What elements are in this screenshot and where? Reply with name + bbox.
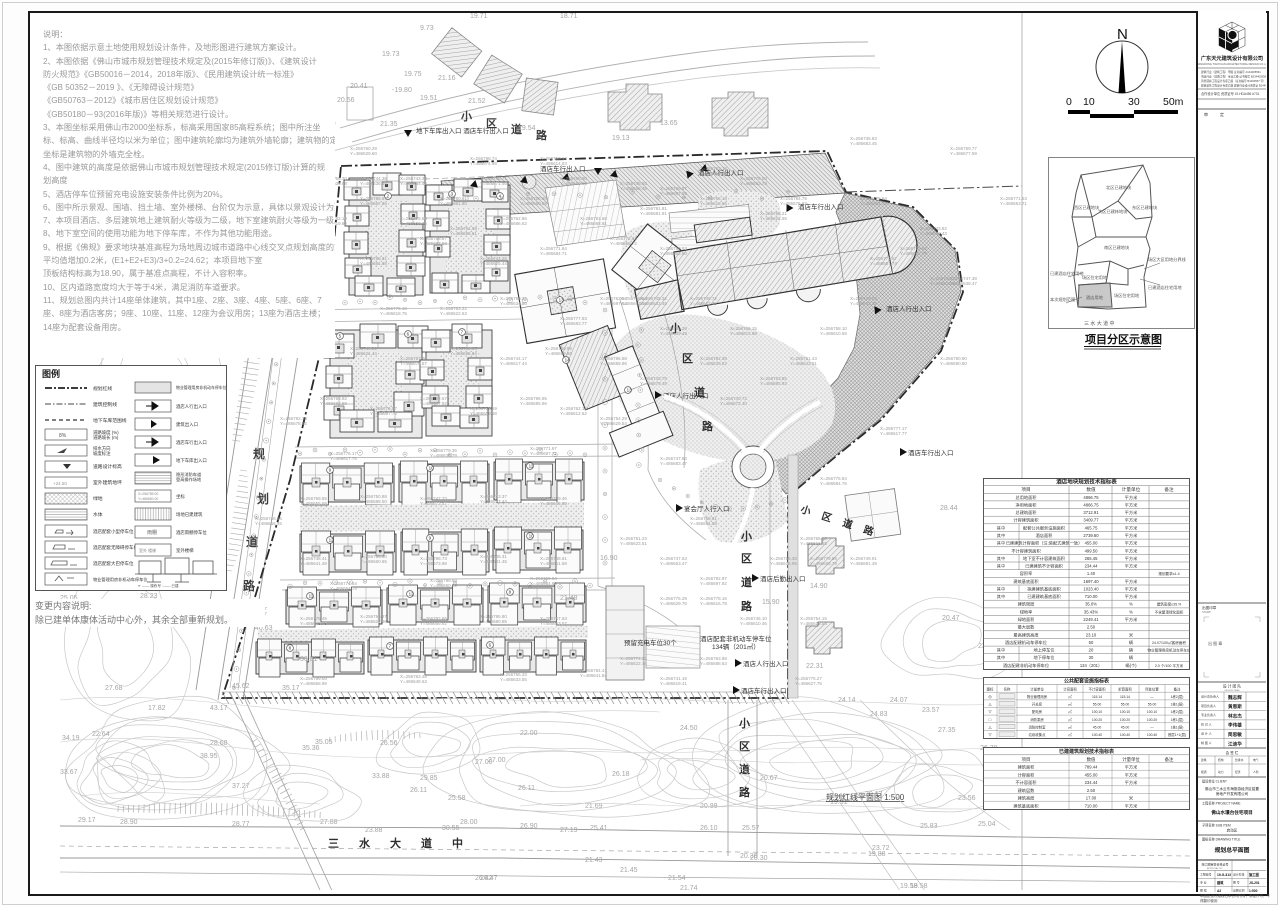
svg-text:33.88: 33.88 xyxy=(372,773,390,780)
svg-text:其中: 其中 xyxy=(997,540,1005,547)
svg-text:Y=486656.46: Y=486656.46 xyxy=(255,521,282,526)
svg-text:13: 13 xyxy=(627,388,633,393)
svg-text:Y=486634.43: Y=486634.43 xyxy=(400,181,427,186)
svg-text:合作设计单位 资质证号 19-HDA456 #731: 合作设计单位 资质证号 19-HDA456 #731 xyxy=(1201,91,1260,96)
svg-text:12: 12 xyxy=(409,592,415,597)
svg-text:Y=486683.47: Y=486683.47 xyxy=(660,461,687,466)
svg-text:%: % xyxy=(1129,602,1133,607)
svg-text:1栋2(层): 1栋2(层) xyxy=(1171,694,1184,699)
svg-text:Y=486673.47: Y=486673.47 xyxy=(420,501,447,506)
svg-text:10: 10 xyxy=(1083,96,1095,108)
svg-text:789.44: 789.44 xyxy=(1085,765,1098,770)
svg-text:道路设计标高: 道路设计标高 xyxy=(93,463,122,470)
svg-text:Y=486650.76: Y=486650.76 xyxy=(400,221,427,226)
svg-text:其中: 其中 xyxy=(997,532,1005,539)
svg-text:1.40: 1.40 xyxy=(1087,571,1096,576)
svg-text:26.11: 26.11 xyxy=(518,785,535,792)
svg-text:辆: 辆 xyxy=(1129,639,1133,646)
svg-text:数值: 数值 xyxy=(1087,756,1096,763)
svg-text:+24.50: +24.50 xyxy=(53,481,67,486)
svg-text:24.50: 24.50 xyxy=(680,725,698,732)
svg-text:其中: 其中 xyxy=(997,555,1005,562)
svg-text:8%: 8% xyxy=(59,433,67,439)
svg-text:Y=486629.60: Y=486629.60 xyxy=(350,151,377,156)
svg-text:Y=486664.75: Y=486664.75 xyxy=(860,201,887,206)
svg-text:南区已建地块: 南区已建地块 xyxy=(1104,244,1130,251)
svg-text:Y=486614.53: Y=486614.53 xyxy=(540,161,567,166)
svg-text:开关房: 开关房 xyxy=(1032,702,1043,707)
svg-text:Y=486663.49: Y=486663.49 xyxy=(850,301,877,306)
svg-text:规划红线: 规划红线 xyxy=(93,385,112,392)
svg-text:100.40: 100.40 xyxy=(1120,733,1130,737)
svg-text:校 对 人: 校 对 人 xyxy=(1201,721,1212,726)
svg-text:其中: 其中 xyxy=(997,593,1005,600)
svg-text:设 计 人: 设 计 人 xyxy=(1201,731,1212,736)
svg-text:Y=486681.59: Y=486681.59 xyxy=(690,521,717,526)
svg-text:21.74: 21.74 xyxy=(680,885,698,892)
svg-text:Y=486632.45: Y=486632.45 xyxy=(640,301,667,306)
svg-text:李伟雄: 李伟雄 xyxy=(1227,722,1242,729)
svg-text:道: 道 xyxy=(741,575,752,589)
svg-text:1697.40: 1697.40 xyxy=(1083,579,1099,584)
svg-text:建筑密度≤35.%: 建筑密度≤35.% xyxy=(1157,602,1182,607)
svg-text:50m: 50m xyxy=(1163,96,1184,108)
svg-text:大区已建林地块: 大区已建林地块 xyxy=(1098,208,1128,215)
svg-text:19-G-313: 19-G-313 xyxy=(1217,873,1231,877)
svg-text:14: 14 xyxy=(565,358,571,363)
svg-text:Y=486674.98: Y=486674.98 xyxy=(470,161,497,166)
svg-text:区: 区 xyxy=(739,740,750,753)
svg-text:区: 区 xyxy=(682,352,693,365)
svg-text:北区已建地块: 北区已建地块 xyxy=(1106,184,1132,191)
svg-text:26.56: 26.56 xyxy=(380,740,398,747)
svg-text:江迪华: 江迪华 xyxy=(1228,740,1242,747)
svg-text:道: 道 xyxy=(739,762,750,776)
svg-text:28.44: 28.44 xyxy=(940,505,958,512)
svg-text:21.16: 21.16 xyxy=(438,75,456,82)
svg-text:专 业: 专 业 xyxy=(1200,880,1207,885)
svg-text:路: 路 xyxy=(741,599,753,613)
svg-text:设计阶段: 设计阶段 xyxy=(1233,872,1245,877)
svg-text:建筑基底面积: 建筑基底面积 xyxy=(1013,802,1038,809)
svg-text:3409.77: 3409.77 xyxy=(1083,518,1099,523)
svg-text:建筑: 建筑 xyxy=(1201,758,1207,762)
svg-text:辆: 辆 xyxy=(1129,654,1133,661)
svg-text:36.81: 36.81 xyxy=(300,656,318,663)
svg-text:Y=486673.98: Y=486673.98 xyxy=(420,561,447,566)
svg-text:佛山水璟台住宅项目: 佛山水璟台住宅项目 xyxy=(1210,809,1252,816)
svg-text:100.20: 100.20 xyxy=(1147,718,1157,722)
svg-text:Y=486697.69: Y=486697.69 xyxy=(660,191,687,196)
svg-text:30: 30 xyxy=(1128,96,1140,108)
svg-text:Y=486625.44: Y=486625.44 xyxy=(480,261,507,266)
svg-text:道: 道 xyxy=(421,836,432,850)
svg-text:29.85: 29.85 xyxy=(420,775,438,782)
svg-text:Y=486634.80: Y=486634.80 xyxy=(500,301,527,306)
svg-text:室外 楼梯: 室外 楼梯 xyxy=(139,547,156,553)
svg-text:市政行业（道路工程）专业乙级 证书编号 B234400556: 市政行业（道路工程）专业乙级 证书编号 B2344005561 xyxy=(1201,75,1266,79)
svg-text:酒店人行出入口: 酒店人行出入口 xyxy=(176,403,207,410)
svg-text:35.05: 35.05 xyxy=(315,739,333,746)
svg-text:不含屋顶绿化面积: 不含屋顶绿化面积 xyxy=(1155,609,1184,614)
svg-text:绿地面积: 绿地面积 xyxy=(1018,616,1035,623)
svg-text:Y=486621.55: Y=486621.55 xyxy=(760,216,787,221)
svg-text:Y=486688.63: Y=486688.63 xyxy=(700,661,727,666)
svg-text:图纸名称 DRAWING TITLE: 图纸名称 DRAWING TITLE xyxy=(1202,837,1240,842)
svg-text:场地已建建筑: 场地已建建筑 xyxy=(176,511,203,518)
svg-text:林志杰: 林志杰 xyxy=(1228,712,1242,719)
svg-text:21.54: 21.54 xyxy=(668,875,686,882)
svg-text:Y=486678.92: Y=486678.92 xyxy=(280,421,307,426)
svg-text:地下车库范围线: 地下车库范围线 xyxy=(93,417,127,424)
svg-text:4866.75: 4866.75 xyxy=(1083,495,1099,500)
svg-text:3712.91: 3712.91 xyxy=(1083,510,1099,515)
svg-text:27.19: 27.19 xyxy=(560,827,578,834)
svg-text:35.36: 35.36 xyxy=(302,745,320,752)
svg-text:14.90: 14.90 xyxy=(810,583,828,590)
svg-text:已建酒店住宅用地: 已建酒店住宅用地 xyxy=(1050,270,1084,277)
svg-text:酒店配套大巴停车位: 酒店配套大巴停车位 xyxy=(93,560,134,567)
svg-text:魏志辉: 魏志辉 xyxy=(1227,694,1242,701)
svg-text:27.35: 27.35 xyxy=(938,727,956,734)
svg-text:计量单位: 计量单位 xyxy=(1122,486,1141,493)
svg-text:455.00: 455.00 xyxy=(1085,772,1098,777)
svg-text:Y=486657.74: Y=486657.74 xyxy=(870,261,897,266)
svg-text:计量单位: 计量单位 xyxy=(1030,686,1044,691)
svg-text:Y=486683.45: Y=486683.45 xyxy=(850,141,877,146)
svg-text:Y=486622.63: Y=486622.63 xyxy=(440,311,467,316)
svg-text:不计容面积: 不计容面积 xyxy=(1016,779,1037,786)
svg-text:26.90: 26.90 xyxy=(520,823,538,830)
svg-text:Y=486646.89: Y=486646.89 xyxy=(540,501,567,506)
svg-text:24.07/100㎡客房面积: 24.07/100㎡客房面积 xyxy=(1152,640,1186,645)
svg-text:预留充电车位30个: 预留充电车位30个 xyxy=(624,638,677,647)
svg-text:Y=486684.71: Y=486684.71 xyxy=(540,251,567,256)
svg-text:已建酒店住宅用地: 已建酒店住宅用地 xyxy=(1148,284,1182,291)
svg-text:26.18: 26.18 xyxy=(612,771,630,778)
svg-text:已建建筑规划技术指标表: 已建建筑规划技术指标表 xyxy=(1059,748,1115,755)
svg-text:Y=486653.47: Y=486653.47 xyxy=(660,561,687,566)
svg-text:45.00: 45.00 xyxy=(1121,726,1130,730)
svg-text:115.14: 115.14 xyxy=(1092,695,1102,699)
svg-text:总用地面积: 总用地面积 xyxy=(1016,494,1037,501)
svg-text:10: 10 xyxy=(529,534,535,539)
svg-text:22.64: 22.64 xyxy=(92,731,110,738)
svg-text:19.58: 19.58 xyxy=(910,883,928,890)
svg-text:绿地: 绿地 xyxy=(93,495,103,502)
svg-text:Y=486661.80: Y=486661.80 xyxy=(440,201,467,206)
svg-text:不计容建筑面积: 不计容建筑面积 xyxy=(1011,547,1040,554)
svg-text:16.90: 16.90 xyxy=(600,555,618,562)
svg-text:三: 三 xyxy=(328,837,339,850)
svg-text:不计容面积: 不计容面积 xyxy=(1089,686,1107,691)
svg-text:图标: 图标 xyxy=(987,686,994,691)
svg-text:图 幅: 图 幅 xyxy=(1200,888,1207,893)
svg-text:35.43%: 35.43% xyxy=(1084,609,1098,614)
svg-text:Y=486693.79: Y=486693.79 xyxy=(740,181,767,186)
svg-text:Y=486637.43: Y=486637.43 xyxy=(480,499,507,504)
svg-text:Y=486618.66: Y=486618.66 xyxy=(700,201,727,206)
svg-text:酒店雨棚停车位: 酒店雨棚停车位 xyxy=(176,529,207,536)
svg-text:平方米: 平方米 xyxy=(1125,771,1138,778)
svg-text:公共配套设施指标表: 公共配套设施指标表 xyxy=(1064,678,1110,685)
svg-text:25.04: 25.04 xyxy=(978,821,996,828)
svg-text:Y=486660.65: Y=486660.65 xyxy=(520,201,547,206)
svg-text:其中: 其中 xyxy=(997,524,1005,531)
svg-text:黄恩斯: 黄恩斯 xyxy=(1228,703,1242,710)
svg-text:Y=486658.96: Y=486658.96 xyxy=(600,361,627,366)
svg-text:N: N xyxy=(1117,26,1128,43)
svg-text:12: 12 xyxy=(329,538,335,543)
svg-text:平方米: 平方米 xyxy=(1125,540,1138,547)
svg-text:广东天元建筑设计有限公司: 广东天元建筑设计有限公司 xyxy=(1201,54,1263,62)
svg-text:佛山市三水云东海旅游经济区铭置: 佛山市三水云东海旅游经济区铭置 xyxy=(1205,786,1259,791)
svg-text:酒店后勤出入口: 酒店后勤出入口 xyxy=(760,574,806,583)
svg-text:水体: 水体 xyxy=(93,511,103,518)
svg-text:场区住宅用地: 场区住宅用地 xyxy=(1114,292,1140,299)
svg-text:建设单位 CLIENT: 建设单位 CLIENT xyxy=(1202,779,1227,784)
svg-text:28.90: 28.90 xyxy=(120,819,138,826)
svg-text:100.10: 100.10 xyxy=(1092,710,1102,714)
svg-text:Y=486697.76: Y=486697.76 xyxy=(370,411,397,416)
svg-text:酒店配建机动车停车位: 酒店配建机动车停车位 xyxy=(1005,639,1047,646)
svg-text:场区住宅用地: 场区住宅用地 xyxy=(1082,274,1108,281)
svg-text:酒店人行出入口: 酒店人行出入口 xyxy=(886,304,932,313)
svg-text:21.69: 21.69 xyxy=(585,803,603,810)
svg-text:Y=486659.58: Y=486659.58 xyxy=(470,411,497,416)
svg-text:10: 10 xyxy=(429,466,435,471)
svg-text:18.71: 18.71 xyxy=(560,13,578,20)
svg-text:24.07: 24.07 xyxy=(890,697,908,704)
svg-text:Y=486684.76: Y=486684.76 xyxy=(820,481,847,486)
svg-text:Y=486641.84: Y=486641.84 xyxy=(580,673,607,678)
svg-text:酒店面积: 酒店面积 xyxy=(1036,532,1053,539)
svg-text:1栋1(层): 1栋1(层) xyxy=(1171,725,1184,730)
svg-text:Y=486663.57: Y=486663.57 xyxy=(540,621,567,626)
svg-text:100.40: 100.40 xyxy=(1092,733,1102,737)
svg-text:Y=486664.74: Y=486664.74 xyxy=(330,586,357,591)
svg-text:100.20: 100.20 xyxy=(1092,718,1102,722)
svg-text:35.0%: 35.0% xyxy=(1085,602,1097,607)
svg-text:23.72: 23.72 xyxy=(872,845,890,852)
svg-text:室外建筑地坪: 室外建筑地坪 xyxy=(93,479,122,486)
svg-text:Y=486660.65: Y=486660.65 xyxy=(360,559,387,564)
svg-text:Y=486636.79: Y=486636.79 xyxy=(430,453,457,458)
svg-text:首层1+1(层): 首层1+1(层) xyxy=(1168,732,1186,737)
svg-text:Y=486681.88: Y=486681.88 xyxy=(360,261,387,266)
svg-text:Y=486645.75: Y=486645.75 xyxy=(300,621,327,626)
svg-text:垃圾收集点: 垃圾收集点 xyxy=(1029,732,1047,737)
svg-text:710.00: 710.00 xyxy=(1085,594,1098,599)
svg-text:Y=486697.92: Y=486697.92 xyxy=(700,581,727,586)
svg-text:11: 11 xyxy=(529,464,534,469)
svg-text:11: 11 xyxy=(309,594,314,599)
svg-text:净用地面积: 净用地面积 xyxy=(1016,501,1037,508)
svg-text:27.88: 27.88 xyxy=(320,819,338,826)
svg-text:平方米: 平方米 xyxy=(1125,802,1138,809)
svg-text:平方米: 平方米 xyxy=(1125,524,1138,531)
svg-text:38.95: 38.95 xyxy=(200,753,218,760)
svg-text:20.30: 20.30 xyxy=(750,855,768,862)
svg-text:平方米: 平方米 xyxy=(1125,532,1138,539)
svg-text:地上停车位: 地上停车位 xyxy=(1034,647,1055,654)
svg-text:Y=486619.41: Y=486619.41 xyxy=(660,681,687,686)
svg-text:消防控制室: 消防控制室 xyxy=(1029,725,1047,730)
svg-text:Y=486661.68: Y=486661.68 xyxy=(540,561,567,566)
svg-text:建筑出入口: 建筑出入口 xyxy=(176,421,198,428)
svg-text:启动区: 启动区 xyxy=(1227,828,1238,833)
svg-text:Y=486616.65: Y=486616.65 xyxy=(800,541,827,546)
svg-text:15.90: 15.90 xyxy=(762,599,780,606)
svg-text:DESIGN TEAM: DESIGN TEAM xyxy=(1224,689,1239,692)
svg-text:物业管理用房机动车停车位: 物业管理用房机动车停车位 xyxy=(1147,648,1190,653)
svg-text:酒店配套无障碍停车位: 酒店配套无障碍停车位 xyxy=(93,544,138,551)
svg-text:Y=486672.40: Y=486672.40 xyxy=(720,401,747,406)
svg-text:Y=486671.46: Y=486671.46 xyxy=(480,181,507,186)
svg-text:Y=486621.44: Y=486621.44 xyxy=(350,351,377,356)
svg-text:%: % xyxy=(1129,609,1133,614)
svg-text:辆: 辆 xyxy=(1129,647,1133,654)
svg-text:其中: 其中 xyxy=(997,647,1005,654)
svg-text:19.13: 19.13 xyxy=(612,135,630,142)
svg-text:备注: 备注 xyxy=(1174,686,1181,691)
svg-text:25.41: 25.41 xyxy=(590,825,608,832)
svg-text:项目分区示意图: 项目分区示意图 xyxy=(1085,332,1162,346)
svg-text:Y=486675.84: Y=486675.84 xyxy=(780,201,807,206)
svg-text:2739.60: 2739.60 xyxy=(1083,533,1099,538)
svg-text:Y=486699.86: Y=486699.86 xyxy=(545,351,572,356)
svg-text:50: 50 xyxy=(1089,640,1094,645)
svg-text:平方米: 平方米 xyxy=(1125,764,1138,771)
svg-text:建筑装饰工程设计专项乙级 建筑行业设计资质证 B244005: 建筑装饰工程设计专项乙级 建筑行业设计资质证 B2440055 xyxy=(1201,84,1266,88)
svg-text:21.52: 21.52 xyxy=(468,98,486,105)
svg-text:X=256789.00: X=256789.00 xyxy=(138,492,158,496)
svg-text:经济: 经济 xyxy=(1235,770,1241,774)
svg-text:Y=486688.50: Y=486688.50 xyxy=(360,499,387,504)
svg-text:Y=486623.51: Y=486623.51 xyxy=(620,541,647,546)
svg-text:设 计 团 队: 设 计 团 队 xyxy=(1223,684,1242,689)
svg-text:STAMP: STAMP xyxy=(1202,610,1211,614)
svg-text:Y=486680.95: Y=486680.95 xyxy=(480,619,507,624)
svg-text:场区大区用地分界线: 场区大区用地分界线 xyxy=(1148,256,1187,263)
svg-text:26.11: 26.11 xyxy=(410,787,427,794)
svg-text:Y=486653.50: Y=486653.50 xyxy=(660,251,687,256)
svg-text:2.50: 2.50 xyxy=(1087,788,1096,793)
svg-text:出 图 章: 出 图 章 xyxy=(1208,640,1222,646)
svg-text:酒店地块规划技术指标表: 酒店地块规划技术指标表 xyxy=(1056,478,1117,486)
svg-text:物业管理用房: 物业管理用房 xyxy=(1027,694,1048,699)
svg-text:Y=486626.60: Y=486626.60 xyxy=(930,281,957,286)
svg-text:21.35: 21.35 xyxy=(380,121,398,128)
svg-text:Y=486616.78: Y=486616.78 xyxy=(700,601,727,606)
svg-text:45.00: 45.00 xyxy=(1093,726,1102,730)
svg-text:1:500: 1:500 xyxy=(1249,889,1258,892)
svg-text:Y=486643.51: Y=486643.51 xyxy=(790,361,817,366)
svg-text:建筑密度: 建筑密度 xyxy=(1018,601,1036,608)
svg-text:25.58: 25.58 xyxy=(448,795,466,802)
svg-text:Y=486627.75: Y=486627.75 xyxy=(795,681,822,686)
svg-text:Y=486653.71: Y=486653.71 xyxy=(1000,201,1027,206)
svg-text:1栋1(层): 1栋1(层) xyxy=(1171,717,1184,722)
svg-text:Y=486682.79: Y=486682.79 xyxy=(900,251,927,256)
svg-text:平方米: 平方米 xyxy=(1125,501,1138,508)
svg-text:21.45: 21.45 xyxy=(620,867,638,874)
svg-text:Y=486685.93: Y=486685.93 xyxy=(760,381,787,386)
svg-text:465.75: 465.75 xyxy=(1085,525,1098,530)
svg-text:Y=486668.91: Y=486668.91 xyxy=(580,221,607,226)
svg-text:43.17: 43.17 xyxy=(210,705,228,712)
svg-text:30: 30 xyxy=(1089,655,1094,660)
svg-text:出图比例: 出图比例 xyxy=(1233,888,1245,893)
svg-text:物业管理用房非机动车停车位: 物业管理用房非机动车停车位 xyxy=(93,576,147,583)
svg-text:Y=486690.80: Y=486690.80 xyxy=(940,361,967,366)
svg-text:Y=486667.86: Y=486667.86 xyxy=(360,201,387,206)
svg-text:审: 审 xyxy=(1204,111,1208,117)
svg-text:会 签 栏: 会 签 栏 xyxy=(1226,750,1239,755)
svg-text:24.14: 24.14 xyxy=(838,697,856,704)
svg-text:19.71: 19.71 xyxy=(470,13,488,20)
svg-text:制 图 人: 制 图 人 xyxy=(1201,740,1212,745)
svg-text:35.17: 35.17 xyxy=(282,685,300,692)
svg-text:Y=486617.77: Y=486617.77 xyxy=(880,431,907,436)
svg-text:Y=486636.44: Y=486636.44 xyxy=(360,181,387,186)
svg-text:平方米: 平方米 xyxy=(1125,616,1138,623)
svg-text:115.14: 115.14 xyxy=(1120,695,1130,699)
svg-text:路: 路 xyxy=(536,128,548,142)
svg-text:Y=486695.84: Y=486695.84 xyxy=(450,351,477,356)
svg-text:拟建建筑基底面积: 拟建建筑基底面积 xyxy=(1027,586,1061,593)
svg-text:建筑: 建筑 xyxy=(1216,880,1224,885)
svg-text:134（201）: 134（201） xyxy=(1080,663,1102,668)
svg-text:29.17: 29.17 xyxy=(78,817,96,824)
svg-text:Y=486618.75: Y=486618.75 xyxy=(380,311,407,316)
svg-text:Y=486695.96: Y=486695.96 xyxy=(520,401,547,406)
svg-text:平方米: 平方米 xyxy=(1125,555,1138,562)
svg-text:计容面积: 计容面积 xyxy=(1063,686,1077,691)
svg-text:Y=486677.59: Y=486677.59 xyxy=(950,151,977,156)
svg-text:备注: 备注 xyxy=(1165,756,1174,763)
svg-text:登高操作场地: 登高操作场地 xyxy=(176,476,202,483)
svg-text:备注: 备注 xyxy=(1164,486,1174,493)
svg-text:定: 定 xyxy=(1220,111,1224,117)
svg-text:100.10: 100.10 xyxy=(1120,710,1130,714)
svg-text:道路坡长 (m): 道路坡长 (m) xyxy=(93,434,119,441)
svg-text:地下车库出入口: 地下车库出入口 xyxy=(176,457,207,464)
svg-text:Y=486615.54: Y=486615.54 xyxy=(800,621,827,626)
svg-text:平方米: 平方米 xyxy=(1125,779,1138,786)
svg-text:19.75: 19.75 xyxy=(404,71,422,78)
svg-text:Y=486648.63: Y=486648.63 xyxy=(400,679,427,684)
svg-text:折算面积: 折算面积 xyxy=(1118,686,1132,691)
svg-text:地下车库出入口 酒店车行出入口: 地下车库出入口 酒店车行出入口 xyxy=(416,126,509,135)
svg-text:24.83: 24.83 xyxy=(870,711,888,718)
svg-text:Y=486617.44: Y=486617.44 xyxy=(500,361,527,366)
svg-text:Y=486672.49: Y=486672.49 xyxy=(690,301,717,306)
svg-text:计量单位: 计量单位 xyxy=(1122,756,1140,763)
svg-text:19.51: 19.51 xyxy=(420,95,438,102)
svg-text:酒店车行出入口: 酒店车行出入口 xyxy=(908,448,954,457)
svg-text:平方米: 平方米 xyxy=(1125,578,1138,585)
svg-text:设计总负责人: 设计总负责人 xyxy=(1201,694,1219,699)
svg-text:名称: 名称 xyxy=(1004,686,1011,691)
svg-text:Y=486697.71: Y=486697.71 xyxy=(530,451,557,456)
svg-text:20.41: 20.41 xyxy=(350,83,368,90)
svg-text:Y=486668.99: Y=486668.99 xyxy=(300,681,327,686)
svg-text:2249.41: 2249.41 xyxy=(1083,617,1099,622)
svg-text:13.65: 13.65 xyxy=(660,120,678,127)
svg-text:平方米: 平方米 xyxy=(1125,563,1138,570)
svg-text:234.44: 234.44 xyxy=(1085,780,1098,785)
